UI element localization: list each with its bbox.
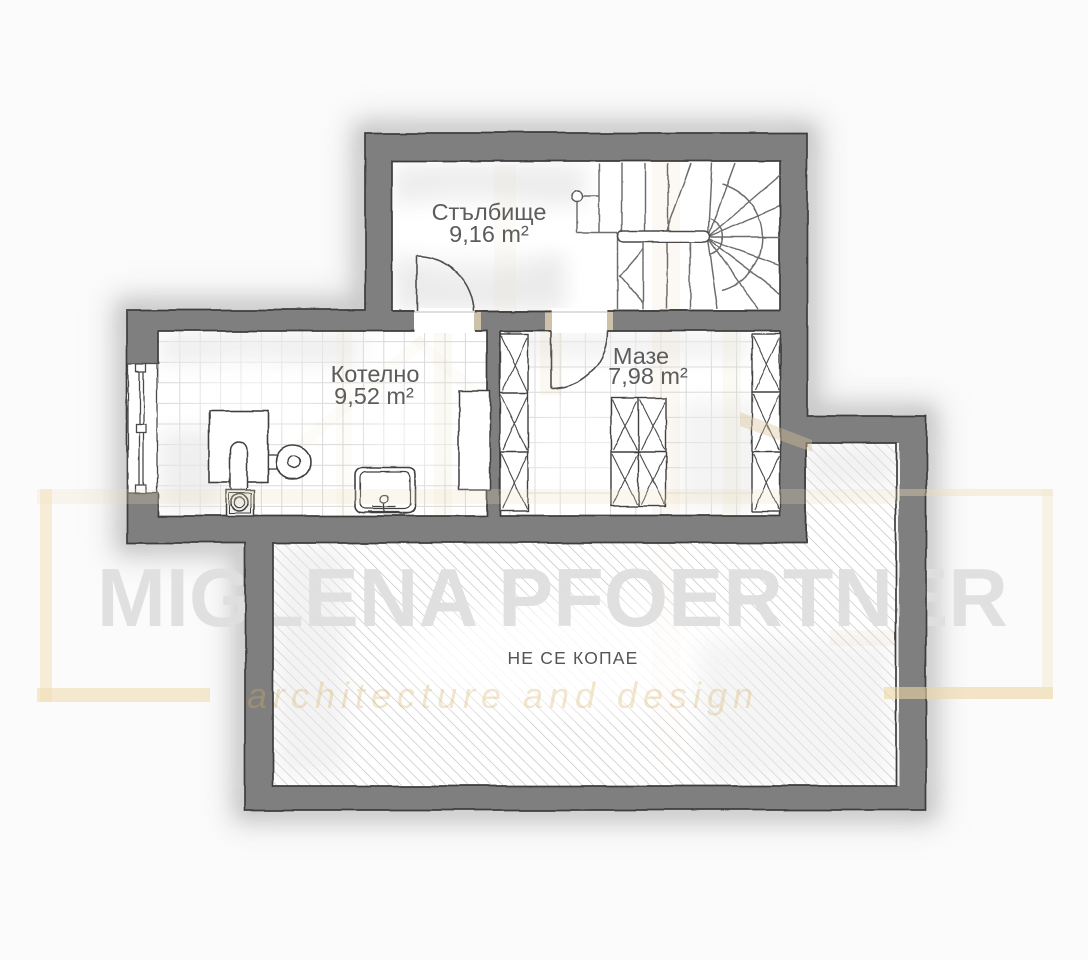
svg-text:7,98 m²: 7,98 m²	[608, 363, 688, 389]
svg-text:9,16 m²: 9,16 m²	[449, 221, 529, 247]
svg-text:MIGLENA PFOERTNER: MIGLENA PFOERTNER	[97, 551, 1008, 644]
svg-text:architecture and design: architecture and design	[247, 675, 753, 716]
svg-text:9,52 m²: 9,52 m²	[334, 383, 414, 409]
svg-text:НЕ СЕ КОПАЕ: НЕ СЕ КОПАЕ	[507, 648, 638, 668]
